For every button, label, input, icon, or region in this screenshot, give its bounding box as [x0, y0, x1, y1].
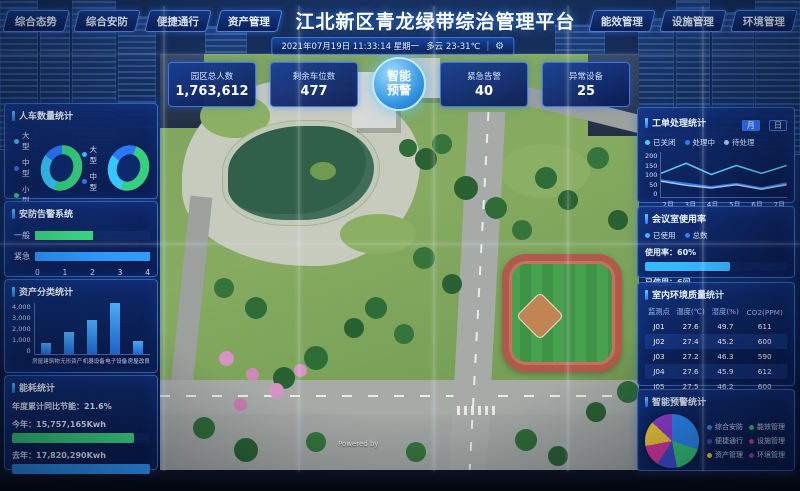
legend-dot — [14, 166, 19, 171]
legend-item: 综合安防 — [707, 422, 743, 432]
legend-item: 资产管理 — [707, 450, 743, 460]
legend-dot — [14, 193, 19, 198]
kpi-emergency-alarms: 紧急告警 40 — [440, 62, 528, 107]
title-accent — [12, 287, 15, 297]
energy-this-year-label: 今年：15,757,165Kwh — [12, 419, 150, 430]
vehicle-donut-left — [34, 139, 88, 196]
title-accent — [12, 111, 15, 121]
asset-y-axis: 4,0003,0002,0001,0000 — [12, 303, 34, 355]
legend-label: 环境管理 — [757, 450, 785, 460]
workorder-chart — [660, 152, 787, 198]
kpi-row: 园区总人数 1,763,612 剩余车位数 477 智能 预警 紧急告警 40 … — [168, 57, 630, 111]
bar-emergency — [35, 252, 150, 261]
lawn — [500, 144, 590, 198]
legend-item: 能效管理 — [749, 422, 785, 432]
workorder-legend: 已关闭处理中待处理 — [645, 137, 787, 148]
legend-dot — [749, 425, 754, 430]
asset-x-labels: 房屋建筑物无形资产机器设备电子设备房屋改良 — [32, 357, 150, 365]
title-accent — [12, 383, 15, 393]
tick: 2 — [90, 268, 95, 277]
category-label: 无形资产 — [60, 357, 82, 365]
legend-label: 资产管理 — [715, 450, 743, 460]
title-accent — [645, 118, 648, 128]
bar-row-general: 一般 — [12, 230, 150, 241]
column-header: CO2(PPM) — [742, 305, 787, 319]
legend-item: 待处理 — [724, 137, 755, 148]
bar-general — [35, 231, 93, 240]
legend-label: 待处理 — [732, 137, 755, 148]
category-label: 房屋建筑物 — [32, 357, 60, 365]
tick: 0 — [35, 268, 40, 277]
panel-smart-warning: 智能预警统计 综合安防能效管理便捷通行设施管理资产管理环境管理 — [637, 389, 795, 471]
legend-dot — [14, 139, 19, 144]
bar — [110, 303, 120, 354]
toggle-day[interactable]: 日 — [769, 120, 787, 131]
bar — [64, 332, 74, 354]
page-title: 江北新区青龙绿带综治管理平台 — [295, 7, 575, 34]
panel-title: 工单处理统计 — [652, 116, 706, 129]
legend-label: 设施管理 — [757, 436, 785, 446]
usage-rate-label: 使用率：60% — [645, 247, 787, 258]
legend-label: 已关闭 — [653, 137, 676, 148]
tick: 3 — [118, 268, 123, 277]
table-cell: 27.6 — [673, 319, 709, 334]
tick: 50 — [645, 181, 657, 189]
panel-title: 能耗统计 — [19, 381, 55, 394]
panel-title: 人车数量统计 — [19, 109, 73, 122]
tab-environment-management[interactable]: 环境管理 — [730, 10, 797, 32]
panel-title: 室内环境质量统计 — [652, 288, 724, 301]
kpi-park-population: 园区总人数 1,763,612 — [168, 62, 256, 107]
stadium-field — [502, 254, 622, 372]
legend-label: 能效管理 — [757, 422, 785, 432]
panel-title: 安防告警系统 — [19, 207, 73, 220]
baseball-diamond — [516, 292, 564, 340]
warning-pie-chart — [645, 414, 699, 468]
tab-comprehensive-situation[interactable]: 综合态势 — [3, 10, 70, 32]
tick: 0 — [645, 190, 657, 198]
tick: 2,000 — [12, 325, 31, 333]
legend-dot — [82, 179, 87, 184]
panel-title: 资产分类统计 — [19, 285, 73, 298]
table-row: J0127.649.7611 — [645, 319, 787, 334]
security-x-axis: 01234 — [35, 268, 150, 277]
road-apron — [160, 414, 639, 471]
title-accent — [645, 397, 648, 407]
indoor-table-head: 监测点温度(℃)湿度(%)CO2(PPM) — [645, 305, 787, 319]
tick: 100 — [645, 171, 657, 179]
legend-label: 中型 — [22, 157, 35, 179]
legend-item: 大型 — [82, 144, 103, 166]
table-cell: 590 — [742, 349, 787, 364]
dashboard-screen: { "header": { "title": "江北新区青龙绿带综治管理平台",… — [0, 0, 800, 491]
table-cell: 27.2 — [673, 349, 709, 364]
legend-dot — [724, 140, 729, 145]
table-row: J0227.445.2600 — [645, 334, 787, 349]
title-accent — [645, 290, 648, 300]
tick: 4 — [145, 268, 150, 277]
panel-asset-category: 资产分类统计 4,0003,0002,0001,0000 房屋建筑物无形资产机器… — [4, 279, 158, 373]
table-cell: 45.2 — [708, 334, 742, 349]
panel-security-alarm: 安防告警系统 一般 紧急 01234 — [4, 201, 158, 277]
legend-label: 处理中 — [693, 137, 716, 148]
tick: 150 — [645, 162, 657, 170]
panel-energy-stats: 能耗统计 年度累计同比节能：21.6% 今年：15,757,165Kwh 去年：… — [4, 375, 158, 470]
tab-energy-management[interactable]: 能效管理 — [588, 10, 655, 32]
bar — [41, 343, 51, 354]
panel-title: 智能预警统计 — [652, 395, 706, 408]
legend-item: 中型 — [82, 171, 103, 193]
panel-work-order-stats: 工单处理统计 月 日 已关闭处理中待处理 200150100500 2月3月4月… — [637, 107, 795, 203]
tick: 1 — [63, 268, 68, 277]
legend-label: 便捷通行 — [715, 436, 743, 446]
column-header: 监测点 — [645, 305, 673, 319]
tab-convenient-passage[interactable]: 便捷通行 — [145, 10, 212, 32]
datetime-bar: 2021年07月19日 11:33:14 星期一 多云 23-31℃ ⚙ — [271, 37, 514, 55]
category-label: 电子设备 — [105, 357, 127, 365]
legend-dot-total — [685, 233, 690, 238]
tick: 3,000 — [12, 314, 31, 322]
legend-dot — [707, 425, 712, 430]
donut-legend-left: 大型中型小型 — [14, 130, 35, 206]
legend-dot-used — [645, 233, 650, 238]
legend-dot — [749, 439, 754, 444]
vehicle-donut-right — [101, 139, 155, 196]
legend-dot — [645, 140, 650, 145]
table-cell: 612 — [742, 364, 787, 379]
legend-item: 设施管理 — [749, 436, 785, 446]
header-tab-bar: 综合态势 综合安防 便捷通行 资产管理 江北新区青龙绿带综治管理平台 能效管理 … — [0, 7, 800, 34]
workorder-y-axis: 200150100500 — [645, 152, 660, 198]
table-row: J0327.246.3590 — [645, 349, 787, 364]
legend-dot — [82, 152, 87, 157]
tab-comprehensive-security[interactable]: 综合安防 — [74, 10, 141, 32]
road — [160, 380, 639, 414]
bar — [87, 320, 97, 354]
divider — [487, 41, 488, 51]
legend-dot — [685, 140, 690, 145]
kpi-abnormal-devices: 异常设备 25 — [542, 62, 630, 107]
table-cell: 611 — [742, 319, 787, 334]
panel-meeting-room-usage: 会议室使用率 已使用 总数 使用率：60% 已使用：6间 — [637, 206, 795, 278]
panel-indoor-environment: 室内环境质量统计 监测点温度(℃)湿度(%)CO2(PPM) J0127.649… — [637, 282, 795, 386]
table-cell: J04 — [645, 364, 673, 379]
bar — [133, 341, 143, 354]
table-cell: 27.6 — [673, 364, 709, 379]
donut-legend-right: 大型中型 — [82, 144, 103, 193]
table-cell: J03 — [645, 349, 673, 364]
indoor-table-body: J0127.649.7611J0227.445.2600J0327.246.35… — [645, 319, 787, 394]
title-accent — [645, 214, 648, 224]
energy-yoy-saving: 年度累计同比节能：21.6% — [12, 401, 150, 412]
column-header: 湿度(%) — [708, 305, 742, 319]
kpi-parking-remaining: 剩余车位数 477 — [270, 62, 358, 107]
table-cell: J01 — [645, 319, 673, 334]
table-cell: 45.9 — [708, 364, 742, 379]
bar-row-emergency: 紧急 — [12, 251, 150, 262]
energy-bar-last-year — [12, 464, 150, 474]
legend-item: 大型 — [14, 130, 35, 152]
legend-label: 中型 — [90, 171, 103, 193]
column-header: 温度(℃) — [673, 305, 709, 319]
tick: 0 — [12, 347, 31, 355]
category-label: 机器设备 — [83, 357, 105, 365]
table-cell: 46.3 — [708, 349, 742, 364]
warning-legend: 综合安防能效管理便捷通行设施管理资产管理环境管理 — [707, 422, 785, 460]
panel-title: 会议室使用率 — [652, 212, 706, 225]
legend-item: 处理中 — [685, 137, 716, 148]
legend-dot — [707, 453, 712, 458]
category-label: 房屋改良 — [128, 357, 150, 365]
asset-bars — [34, 303, 150, 355]
energy-last-year-label: 去年：17,820,290Kwh — [12, 450, 150, 461]
tick: 1,000 — [12, 336, 31, 344]
datetime-text: 2021年07月19日 11:33:14 星期一 — [281, 40, 419, 52]
panel-people-vehicle-stats: 人车数量统计 大型中型小型 大型中型 — [4, 103, 158, 199]
title-accent — [12, 209, 15, 219]
crosswalk — [457, 406, 497, 415]
legend-item: 中型 — [14, 157, 35, 179]
tab-facility-management[interactable]: 设施管理 — [659, 10, 726, 32]
table-row: J0427.645.9612 — [645, 364, 787, 379]
energy-bar-this-year — [12, 433, 134, 443]
tick: 4,000 — [12, 303, 31, 311]
park-3d-map[interactable]: Powered by — [160, 54, 639, 471]
legend-label: 大型 — [90, 144, 103, 166]
legend-label: 大型 — [22, 130, 35, 152]
table-cell: J02 — [645, 334, 673, 349]
toggle-month[interactable]: 月 — [742, 120, 760, 131]
legend-dot — [707, 439, 712, 444]
legend-item: 已关闭 — [645, 137, 676, 148]
indoor-env-table: 监测点温度(℃)湿度(%)CO2(PPM) J0127.649.7611J022… — [645, 305, 787, 394]
legend-item: 环境管理 — [749, 450, 785, 460]
tab-asset-management[interactable]: 资产管理 — [216, 10, 283, 32]
legend-item: 便捷通行 — [707, 436, 743, 446]
smart-alert-button[interactable]: 智能 预警 — [372, 57, 426, 111]
weather-text: 多云 23-31℃ — [426, 40, 480, 52]
legend-dot — [749, 453, 754, 458]
map-watermark: Powered by — [338, 440, 379, 448]
legend-label: 综合安防 — [715, 422, 743, 432]
gear-icon[interactable]: ⚙ — [495, 41, 504, 52]
lawn — [340, 214, 416, 254]
tick: 200 — [645, 152, 657, 160]
table-cell: 600 — [742, 334, 787, 349]
lake-island — [310, 162, 336, 180]
usage-rate-bar — [645, 262, 730, 271]
table-cell: 27.4 — [673, 334, 709, 349]
table-cell: 49.7 — [708, 319, 742, 334]
